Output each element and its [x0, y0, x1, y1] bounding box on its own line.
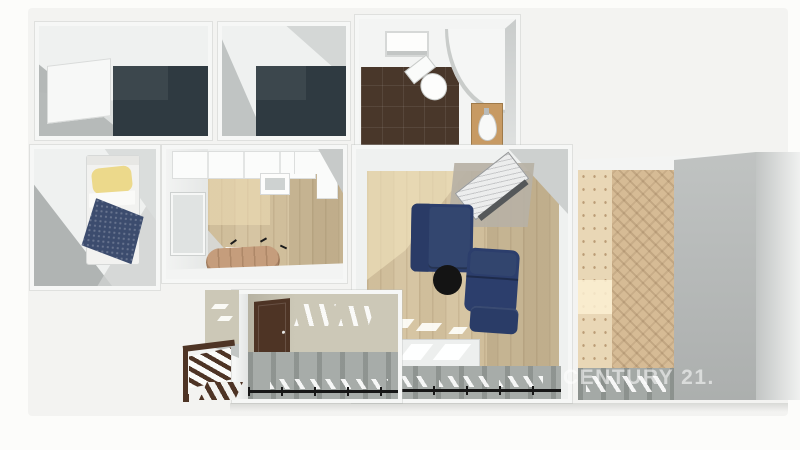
- floorplan-render: CENTURY 21.: [0, 0, 800, 450]
- sun-streak: [217, 316, 233, 321]
- stair-wall: [205, 290, 239, 344]
- chaise-footrest: [469, 305, 519, 334]
- navy-armchair: [410, 203, 473, 272]
- vanity-sink: [478, 113, 497, 141]
- room-kitchen: [162, 145, 347, 283]
- navy-chaise: [464, 247, 520, 314]
- century21-watermark: CENTURY 21.: [563, 366, 715, 390]
- stair-rail-foot: [183, 394, 189, 402]
- black-round-table: [433, 265, 462, 295]
- armchair-cushion: [428, 207, 470, 270]
- sun-streak: [211, 304, 229, 309]
- grey-wall: [674, 152, 756, 400]
- balcony-railing: [248, 390, 402, 393]
- armchair-back: [410, 203, 429, 271]
- herringbone-floor: [612, 170, 674, 368]
- skylight-lip: [387, 51, 427, 55]
- dark-floor-highlight: [256, 66, 306, 100]
- terrace-floor: [248, 352, 402, 399]
- staircase: [183, 290, 239, 402]
- room-bedroom: [30, 145, 160, 290]
- room-parquet: [578, 152, 800, 400]
- room-storage-middle: [218, 22, 350, 140]
- chaise-back-cushion: [469, 250, 516, 276]
- stair-rail-post: [183, 348, 188, 396]
- radiator-sun-stripe: [433, 344, 472, 360]
- radiator-sun-stripe: [399, 344, 434, 360]
- wall-fade: [756, 152, 800, 400]
- dark-floor-highlight: [113, 66, 168, 100]
- room-bathroom: [355, 15, 520, 151]
- single-bed: [86, 155, 140, 265]
- room-storage-left: [35, 22, 212, 140]
- kitchen-window: [171, 193, 205, 255]
- wood-vanity: [471, 103, 503, 149]
- sunlit-patch: [578, 280, 612, 314]
- stair-treads: [199, 382, 243, 400]
- radiator: [396, 339, 480, 368]
- sun-patch: [416, 323, 442, 331]
- vanity-tap: [484, 108, 489, 115]
- drop-shadow: [230, 403, 788, 412]
- skylight-window: [385, 31, 429, 57]
- kitchen-sink: [260, 173, 290, 195]
- sink-basin: [265, 178, 285, 190]
- headboard: [87, 156, 139, 165]
- speckled-wood-strip: [578, 170, 612, 368]
- room-hallway: [232, 290, 402, 403]
- dark-floor: [113, 66, 209, 138]
- dark-floor: [256, 66, 346, 138]
- white-door: [47, 58, 111, 124]
- sun-patch: [448, 327, 467, 334]
